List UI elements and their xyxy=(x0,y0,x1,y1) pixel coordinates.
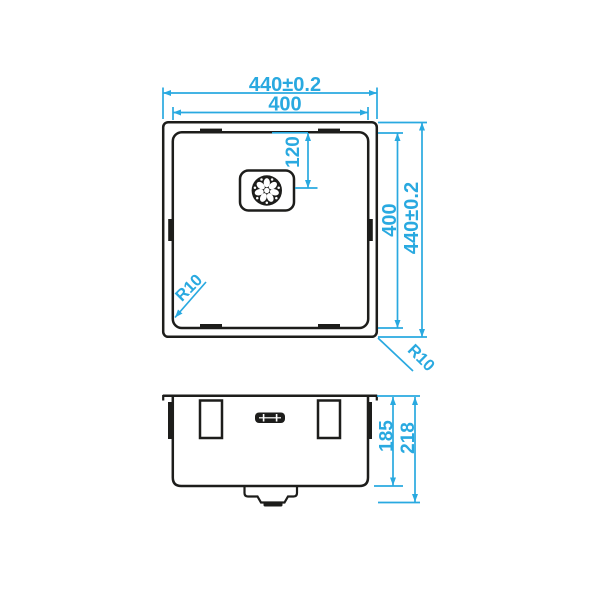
front-view xyxy=(163,395,377,507)
dim-label-outer-height: 440±0.2 xyxy=(401,182,423,254)
clip-right xyxy=(368,219,373,241)
bracket-left xyxy=(200,401,222,439)
clip-top-right xyxy=(318,129,340,134)
side-clip-right xyxy=(367,402,372,439)
top-view-outer-rim xyxy=(163,122,377,337)
top-view-inner-bowl xyxy=(173,132,368,328)
side-clip-left xyxy=(168,402,173,439)
dim-label-inner-height: 400 xyxy=(379,203,401,236)
clip-left xyxy=(168,219,173,241)
dim-label-drain-offset: 120 xyxy=(283,136,304,168)
dim-label-overall-depth: 218 xyxy=(398,422,419,454)
bracket-right xyxy=(318,401,340,439)
clip-bottom-right xyxy=(318,324,340,329)
drawing-svg: 440±0.2 400 120 400 440±0.2 R10 R10 xyxy=(0,0,600,600)
drain-icon xyxy=(240,171,294,211)
dim-label-outer-radius: R10 xyxy=(404,341,438,375)
front-view-dimensions: 185 218 xyxy=(374,396,420,503)
top-view xyxy=(163,122,377,337)
drain-outlet-tab xyxy=(264,503,283,507)
drain-outlet xyxy=(245,487,298,503)
clip-bottom-left xyxy=(200,324,222,329)
dim-label-inner-width: 400 xyxy=(268,94,301,116)
bowl-body xyxy=(173,397,368,486)
overflow-fitting-icon xyxy=(255,413,285,424)
sink-technical-drawing: 440±0.2 400 120 400 440±0.2 R10 R10 xyxy=(0,0,600,600)
clip-top-left xyxy=(200,129,222,134)
dim-label-bowl-depth: 185 xyxy=(377,420,398,452)
top-view-dimensions: 440±0.2 400 120 400 440±0.2 R10 R10 xyxy=(163,74,438,375)
dim-label-inner-radius: R10 xyxy=(172,271,206,305)
